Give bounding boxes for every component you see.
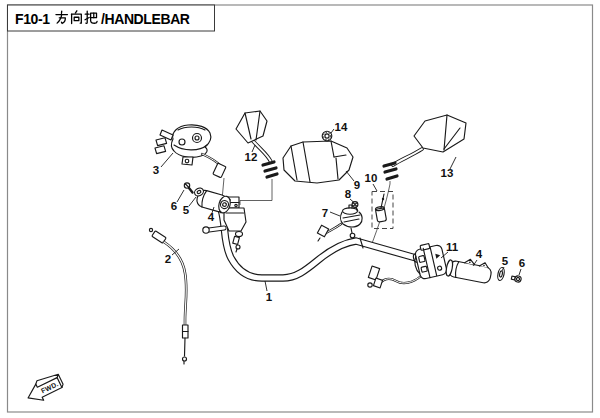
part-13-right-mirror: [384, 115, 466, 184]
part-4-grip-right: [445, 255, 493, 284]
callout-10: 10: [365, 172, 378, 184]
callout-14: 14: [335, 121, 348, 133]
wire-connector: [368, 266, 379, 280]
part-3-left-switch: [155, 125, 226, 178]
part-12-left-mirror: [236, 111, 277, 183]
callout-7: 7: [322, 207, 328, 219]
assembly-phantom-lines: [222, 178, 390, 246]
callout-12: 12: [245, 151, 258, 163]
part-6-bolt-left: [184, 183, 192, 193]
mirror-head: [414, 115, 466, 152]
callout-9: 9: [354, 179, 360, 191]
fwd-arrow: FWD.: [23, 371, 66, 406]
mirror-head: [236, 111, 267, 143]
callout-2: 2: [165, 253, 171, 265]
part-6-bolt-right: [511, 275, 522, 283]
page-border: [8, 5, 593, 412]
callout-3: 3: [153, 164, 159, 176]
handlebar-exploded-diagram: F10-1 /HANDLEBAR: [0, 0, 600, 418]
part-14-nut: [322, 131, 332, 141]
part-1-handlebar: [218, 205, 419, 278]
part-9-handlebar-cover: [283, 141, 353, 183]
wire-connector: [213, 163, 226, 178]
callout-5-left: 5: [183, 204, 190, 216]
part-5-washer-right: [497, 267, 506, 281]
callout-4-left: 4: [208, 211, 215, 223]
page-title-suffix: /HANDLEBAR: [101, 11, 190, 27]
brake-lever-end: [203, 227, 209, 233]
title-block: F10-1 /HANDLEBAR: [8, 5, 215, 31]
part-2-throttle-cable: [149, 228, 188, 364]
callout-1: 1: [266, 291, 273, 303]
callout-6-left: 6: [171, 200, 177, 212]
page-title-prefix: F10-1: [15, 11, 50, 27]
callout-11: 11: [446, 241, 459, 253]
callout-13: 13: [441, 167, 454, 179]
callout-4-right: 4: [476, 248, 483, 260]
callout-5-right: 5: [502, 255, 509, 267]
wire-connector: [317, 225, 328, 237]
callout-8: 8: [345, 188, 352, 200]
callout-6-right: 6: [519, 257, 525, 269]
part-10-mirror-mount: [372, 192, 393, 229]
parts-catalog-page: F10-1 /HANDLEBAR: [0, 0, 600, 418]
